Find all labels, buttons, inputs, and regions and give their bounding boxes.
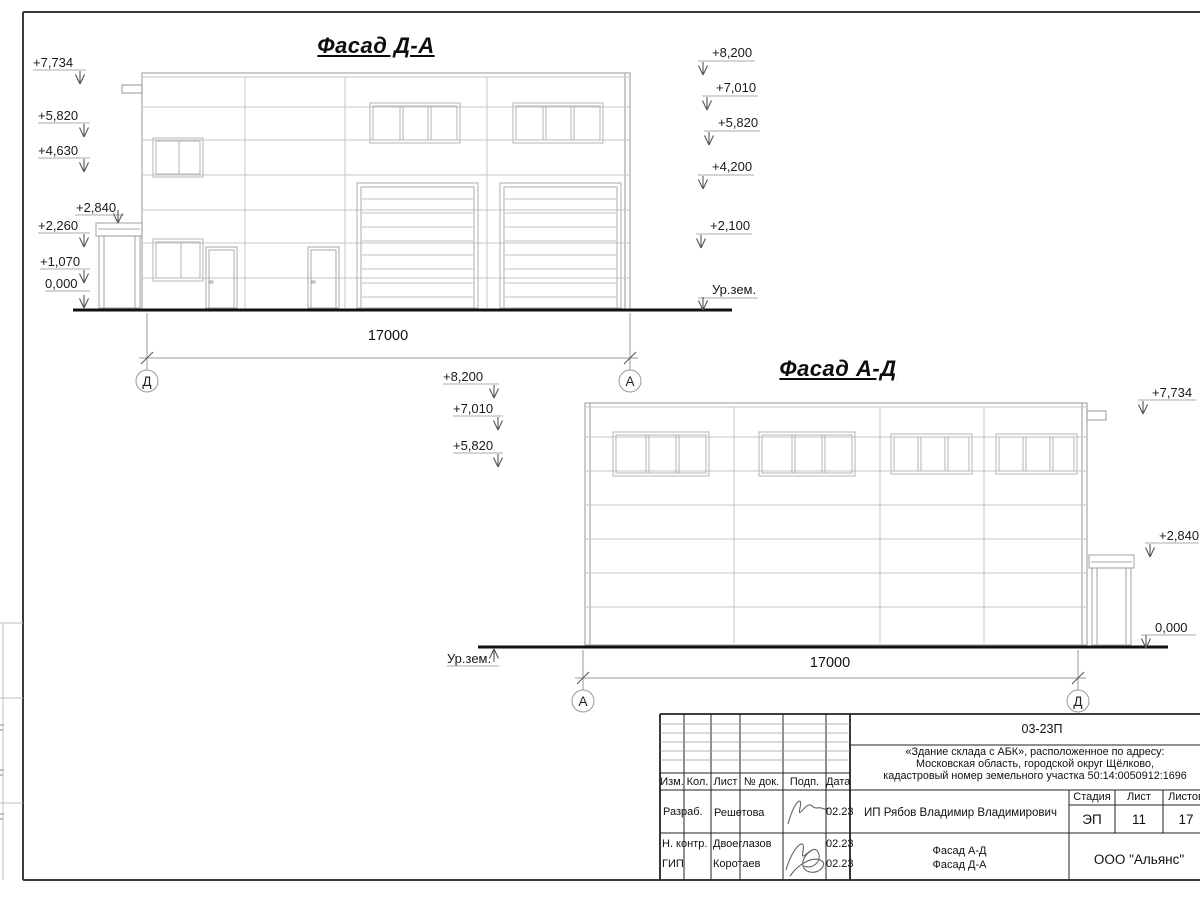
- elevation-label: 0,000: [1155, 621, 1188, 635]
- elevation-label: +7,010: [453, 402, 493, 416]
- strip-window-1: [370, 103, 460, 143]
- strip-window-5: [891, 434, 972, 474]
- organization-name: ООО "Альянс": [1069, 852, 1200, 867]
- elevation-mark-icon: [697, 235, 706, 248]
- elevation-label: +5,820: [718, 116, 758, 130]
- row-name: Решетова: [714, 807, 764, 819]
- sheets-header: Листов: [1163, 791, 1200, 803]
- elevation-mark-icon: [76, 71, 85, 84]
- row-date: 02.23: [826, 838, 850, 850]
- row-name: Коротаев: [713, 858, 761, 870]
- elevation-mark-icon: [699, 176, 708, 189]
- elevation-label: 0,000: [45, 277, 78, 291]
- row-date: 02.23: [826, 806, 850, 818]
- elevation-mark-icon: [494, 417, 503, 430]
- axis-bubble-a: А: [619, 374, 641, 389]
- facade-da-title: Фасад Д-А: [266, 33, 486, 59]
- sheet-value: 11: [1115, 812, 1163, 827]
- elevation-mark-icon: [1146, 544, 1155, 557]
- dimension-da: [136, 313, 641, 392]
- elevation-mark-icon: [699, 62, 708, 75]
- elevation-label: +5,820: [38, 109, 78, 123]
- elevation-mark-icon: [699, 297, 708, 310]
- window-upper-left: [153, 138, 203, 177]
- sheet-header: Лист: [1115, 791, 1163, 803]
- elevation-mark-icon: [80, 234, 89, 247]
- dimension-text: 17000: [338, 328, 438, 344]
- axis-bubble-d: Д: [136, 374, 158, 389]
- elevation-label: +1,070: [40, 255, 80, 269]
- elevation-marks: [33, 61, 1199, 666]
- garage-door-2: [500, 183, 621, 308]
- elevation-label: +8,200: [712, 46, 752, 60]
- doc-number: 03-23П: [850, 722, 1200, 736]
- elevation-mark-icon: [1139, 401, 1148, 414]
- col-header-doc: № док.: [740, 776, 783, 788]
- sheet-title-line: Фасад Д-А: [850, 859, 1069, 871]
- col-header-podp: Подп.: [783, 776, 826, 788]
- strip-window-2: [513, 103, 603, 143]
- elevation-label: +7,734: [1152, 386, 1192, 400]
- window-lower-left: [153, 239, 203, 281]
- elevation-label: +2,260: [38, 219, 78, 233]
- axis-bubble-d: Д: [1067, 694, 1089, 709]
- left-margin-stamp: [0, 623, 23, 880]
- elevation-mark-icon: [80, 159, 89, 172]
- strip-window-3: [613, 432, 709, 476]
- axis-bubble-a: А: [572, 694, 594, 709]
- col-header-kol: Кол.: [684, 776, 711, 788]
- garage-door-1: [357, 183, 478, 308]
- elevation-label: +5,820: [453, 439, 493, 453]
- elevation-label: +7,734: [33, 56, 73, 70]
- project-description-line: кадастровый номер земельного участка 50:…: [855, 771, 1200, 783]
- ground-level-label: Ур.зем.: [447, 652, 491, 666]
- elevation-label: +4,200: [712, 160, 752, 174]
- col-header-izm: Изм.: [660, 776, 684, 788]
- elevation-mark-icon: [80, 295, 89, 308]
- elevation-mark-icon: [705, 132, 714, 145]
- sheet-title-line: Фасад А-Д: [850, 845, 1069, 857]
- elevation-label: +2,840: [76, 201, 116, 215]
- signature-razrab: [788, 801, 830, 824]
- stage-header: Стадия: [1069, 791, 1115, 803]
- elevation-mark-icon: [494, 454, 503, 467]
- stage-value: ЭП: [1069, 812, 1115, 827]
- strip-window-6: [996, 434, 1077, 474]
- row-role: Н. контр.: [662, 838, 707, 850]
- facade-ad-title: Фасад А-Д: [728, 356, 948, 382]
- client-name: ИП Рябов Владимир Владимирович: [852, 807, 1069, 819]
- row-role: ГИП: [662, 858, 684, 870]
- porch-right: [1089, 555, 1134, 645]
- elevation-label: +2,100: [710, 219, 750, 233]
- sheets-value: 17: [1163, 812, 1200, 827]
- col-header-list: Лист: [711, 776, 740, 788]
- col-header-data: Дата: [826, 776, 850, 788]
- signature-nkontr-gip: [786, 844, 824, 876]
- ground-level-label: Ур.зем.: [712, 283, 756, 297]
- facade-da-building: [73, 73, 732, 392]
- row-date: 02.23: [826, 858, 850, 870]
- porch-left: [96, 223, 142, 308]
- elevation-label: +7,010: [716, 81, 756, 95]
- strip-window-4: [759, 432, 855, 476]
- drawing-sheet: Фасад Д-А +7,734 +5,820 +4,630 +2,840 +2…: [0, 0, 1200, 900]
- row-role: Разраб.: [663, 806, 703, 818]
- elevation-label: +4,630: [38, 144, 78, 158]
- elevation-label: +2,840: [1159, 529, 1199, 543]
- elevation-label: +8,200: [443, 370, 483, 384]
- elevation-mark-icon: [703, 97, 712, 110]
- elevation-mark-icon: [490, 385, 499, 398]
- elevation-mark-icon: [80, 270, 89, 283]
- row-name: Двоеглазов: [713, 838, 771, 850]
- elevation-mark-icon: [80, 124, 89, 137]
- elevation-mark-icons: [76, 62, 1155, 662]
- dimension-text: 17000: [780, 655, 880, 671]
